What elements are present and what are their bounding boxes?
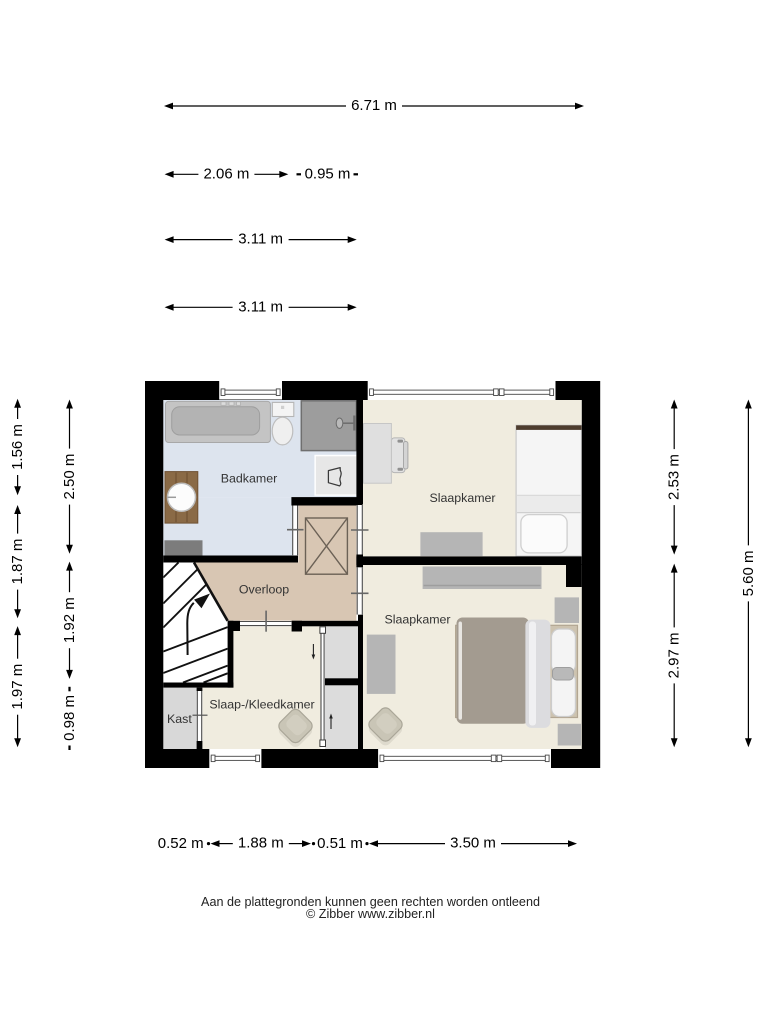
svg-text:2.50 m: 2.50 m (61, 454, 78, 500)
svg-text:3.11 m: 3.11 m (238, 298, 283, 315)
svg-text:3.50 m: 3.50 m (450, 835, 496, 852)
svg-text:Slaapkamer: Slaapkamer (429, 491, 495, 505)
svg-text:Slaap-/Kleedkamer: Slaap-/Kleedkamer (209, 697, 314, 711)
svg-text:1.88 m: 1.88 m (238, 835, 284, 852)
svg-text:0.52 m: 0.52 m (158, 835, 204, 852)
svg-text:2.53 m: 2.53 m (666, 454, 683, 500)
svg-text:3.11 m: 3.11 m (238, 231, 283, 248)
svg-text:Badkamer: Badkamer (221, 472, 277, 486)
svg-text:5.60 m: 5.60 m (740, 550, 757, 596)
svg-text:Slaapkamer: Slaapkamer (384, 612, 450, 626)
svg-text:1.92 m: 1.92 m (61, 597, 78, 643)
svg-text:1.97 m: 1.97 m (9, 664, 26, 710)
svg-text:© Zibber www.zibber.nl: © Zibber www.zibber.nl (306, 907, 435, 921)
svg-text:Kast: Kast (167, 712, 192, 726)
svg-text:6.71 m: 6.71 m (351, 97, 397, 114)
svg-text:Overloop: Overloop (239, 583, 289, 597)
svg-text:1.87 m: 1.87 m (9, 539, 26, 585)
svg-text:0.51 m: 0.51 m (317, 835, 363, 852)
svg-text:0.95 m: 0.95 m (305, 165, 351, 182)
svg-text:1.56 m: 1.56 m (9, 424, 26, 470)
svg-text:0.98 m: 0.98 m (61, 695, 78, 741)
svg-text:2.06 m: 2.06 m (203, 165, 249, 182)
svg-text:2.97 m: 2.97 m (666, 632, 683, 678)
